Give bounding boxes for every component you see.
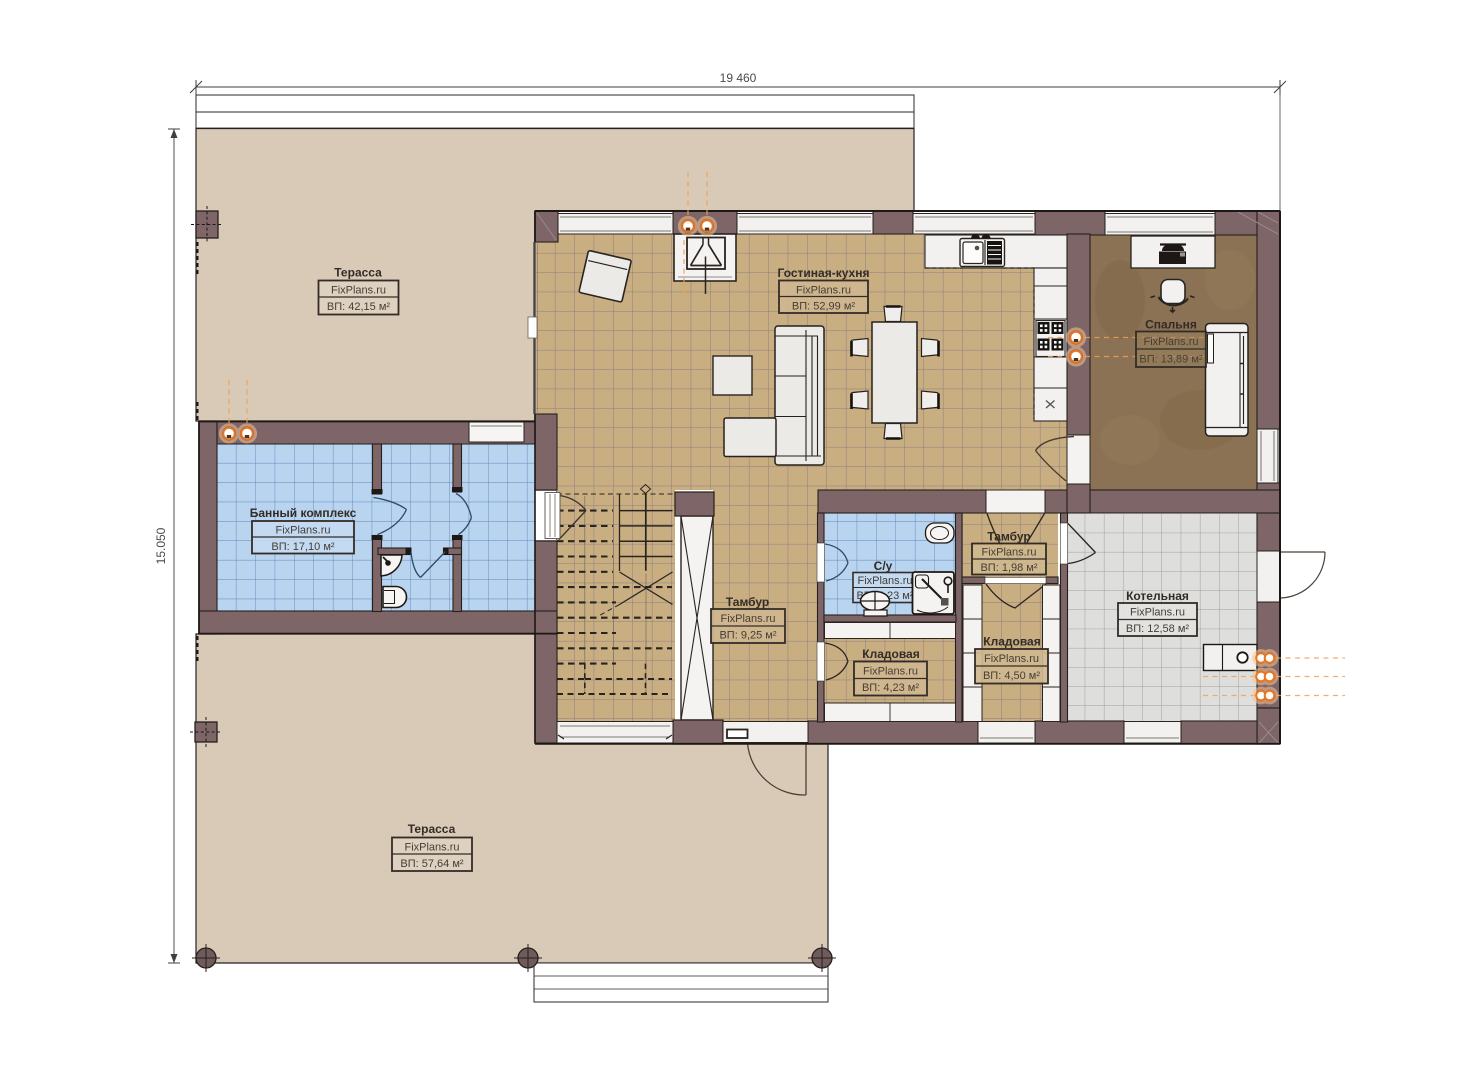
- svg-text:ВП: 4,23 м²: ВП: 4,23 м²: [862, 682, 919, 694]
- svg-text:Кладовая: Кладовая: [983, 635, 1040, 649]
- svg-text:ВП: 52,99 м²: ВП: 52,99 м²: [792, 301, 856, 313]
- svg-text:FixPlans.ru: FixPlans.ru: [857, 575, 912, 587]
- svg-text:FixPlans.ru: FixPlans.ru: [331, 285, 386, 297]
- svg-text:FixPlans.ru: FixPlans.ru: [1143, 336, 1198, 348]
- svg-text:ВП: 42,15 м²: ВП: 42,15 м²: [327, 301, 391, 313]
- svg-text:FixPlans.ru: FixPlans.ru: [796, 285, 851, 297]
- svg-text:ВП: 12,58 м²: ВП: 12,58 м²: [1126, 623, 1190, 635]
- svg-text:Терасса: Терасса: [408, 822, 456, 836]
- svg-text:ВП: 13,89 м²: ВП: 13,89 м²: [1139, 354, 1203, 366]
- svg-text:Котельная: Котельная: [1126, 589, 1189, 603]
- svg-text:15.050: 15.050: [154, 527, 168, 564]
- svg-text:ВП: 9,25 м²: ВП: 9,25 м²: [719, 630, 776, 642]
- svg-text:Кладовая: Кладовая: [862, 647, 919, 661]
- svg-text:FixPlans.ru: FixPlans.ru: [1130, 607, 1185, 619]
- svg-text:FixPlans.ru: FixPlans.ru: [404, 842, 459, 854]
- svg-text:FixPlans.ru: FixPlans.ru: [863, 666, 918, 678]
- svg-text:19 460: 19 460: [720, 71, 757, 85]
- svg-text:Спальня: Спальня: [1145, 318, 1197, 332]
- svg-text:Банный комплекс: Банный комплекс: [250, 506, 357, 520]
- svg-text:ВП: 4,50 м²: ВП: 4,50 м²: [983, 670, 1040, 682]
- svg-text:FixPlans.ru: FixPlans.ru: [275, 525, 330, 537]
- svg-text:С/у: С/у: [874, 559, 893, 573]
- svg-text:FixPlans.ru: FixPlans.ru: [981, 547, 1036, 559]
- svg-text:ВП: 1,98 м²: ВП: 1,98 м²: [980, 562, 1037, 574]
- svg-text:Гостиная-кухня: Гостиная-кухня: [778, 266, 870, 280]
- svg-text:FixPlans.ru: FixPlans.ru: [984, 653, 1039, 665]
- svg-text:ВП: 57,64 м²: ВП: 57,64 м²: [400, 858, 464, 870]
- svg-text:Тамбур: Тамбур: [726, 595, 770, 609]
- svg-text:Терасса: Терасса: [334, 266, 382, 280]
- svg-text:ВП: 17,10 м²: ВП: 17,10 м²: [271, 541, 335, 553]
- svg-text:FixPlans.ru: FixPlans.ru: [720, 613, 775, 625]
- svg-text:Тамбур: Тамбур: [987, 530, 1031, 544]
